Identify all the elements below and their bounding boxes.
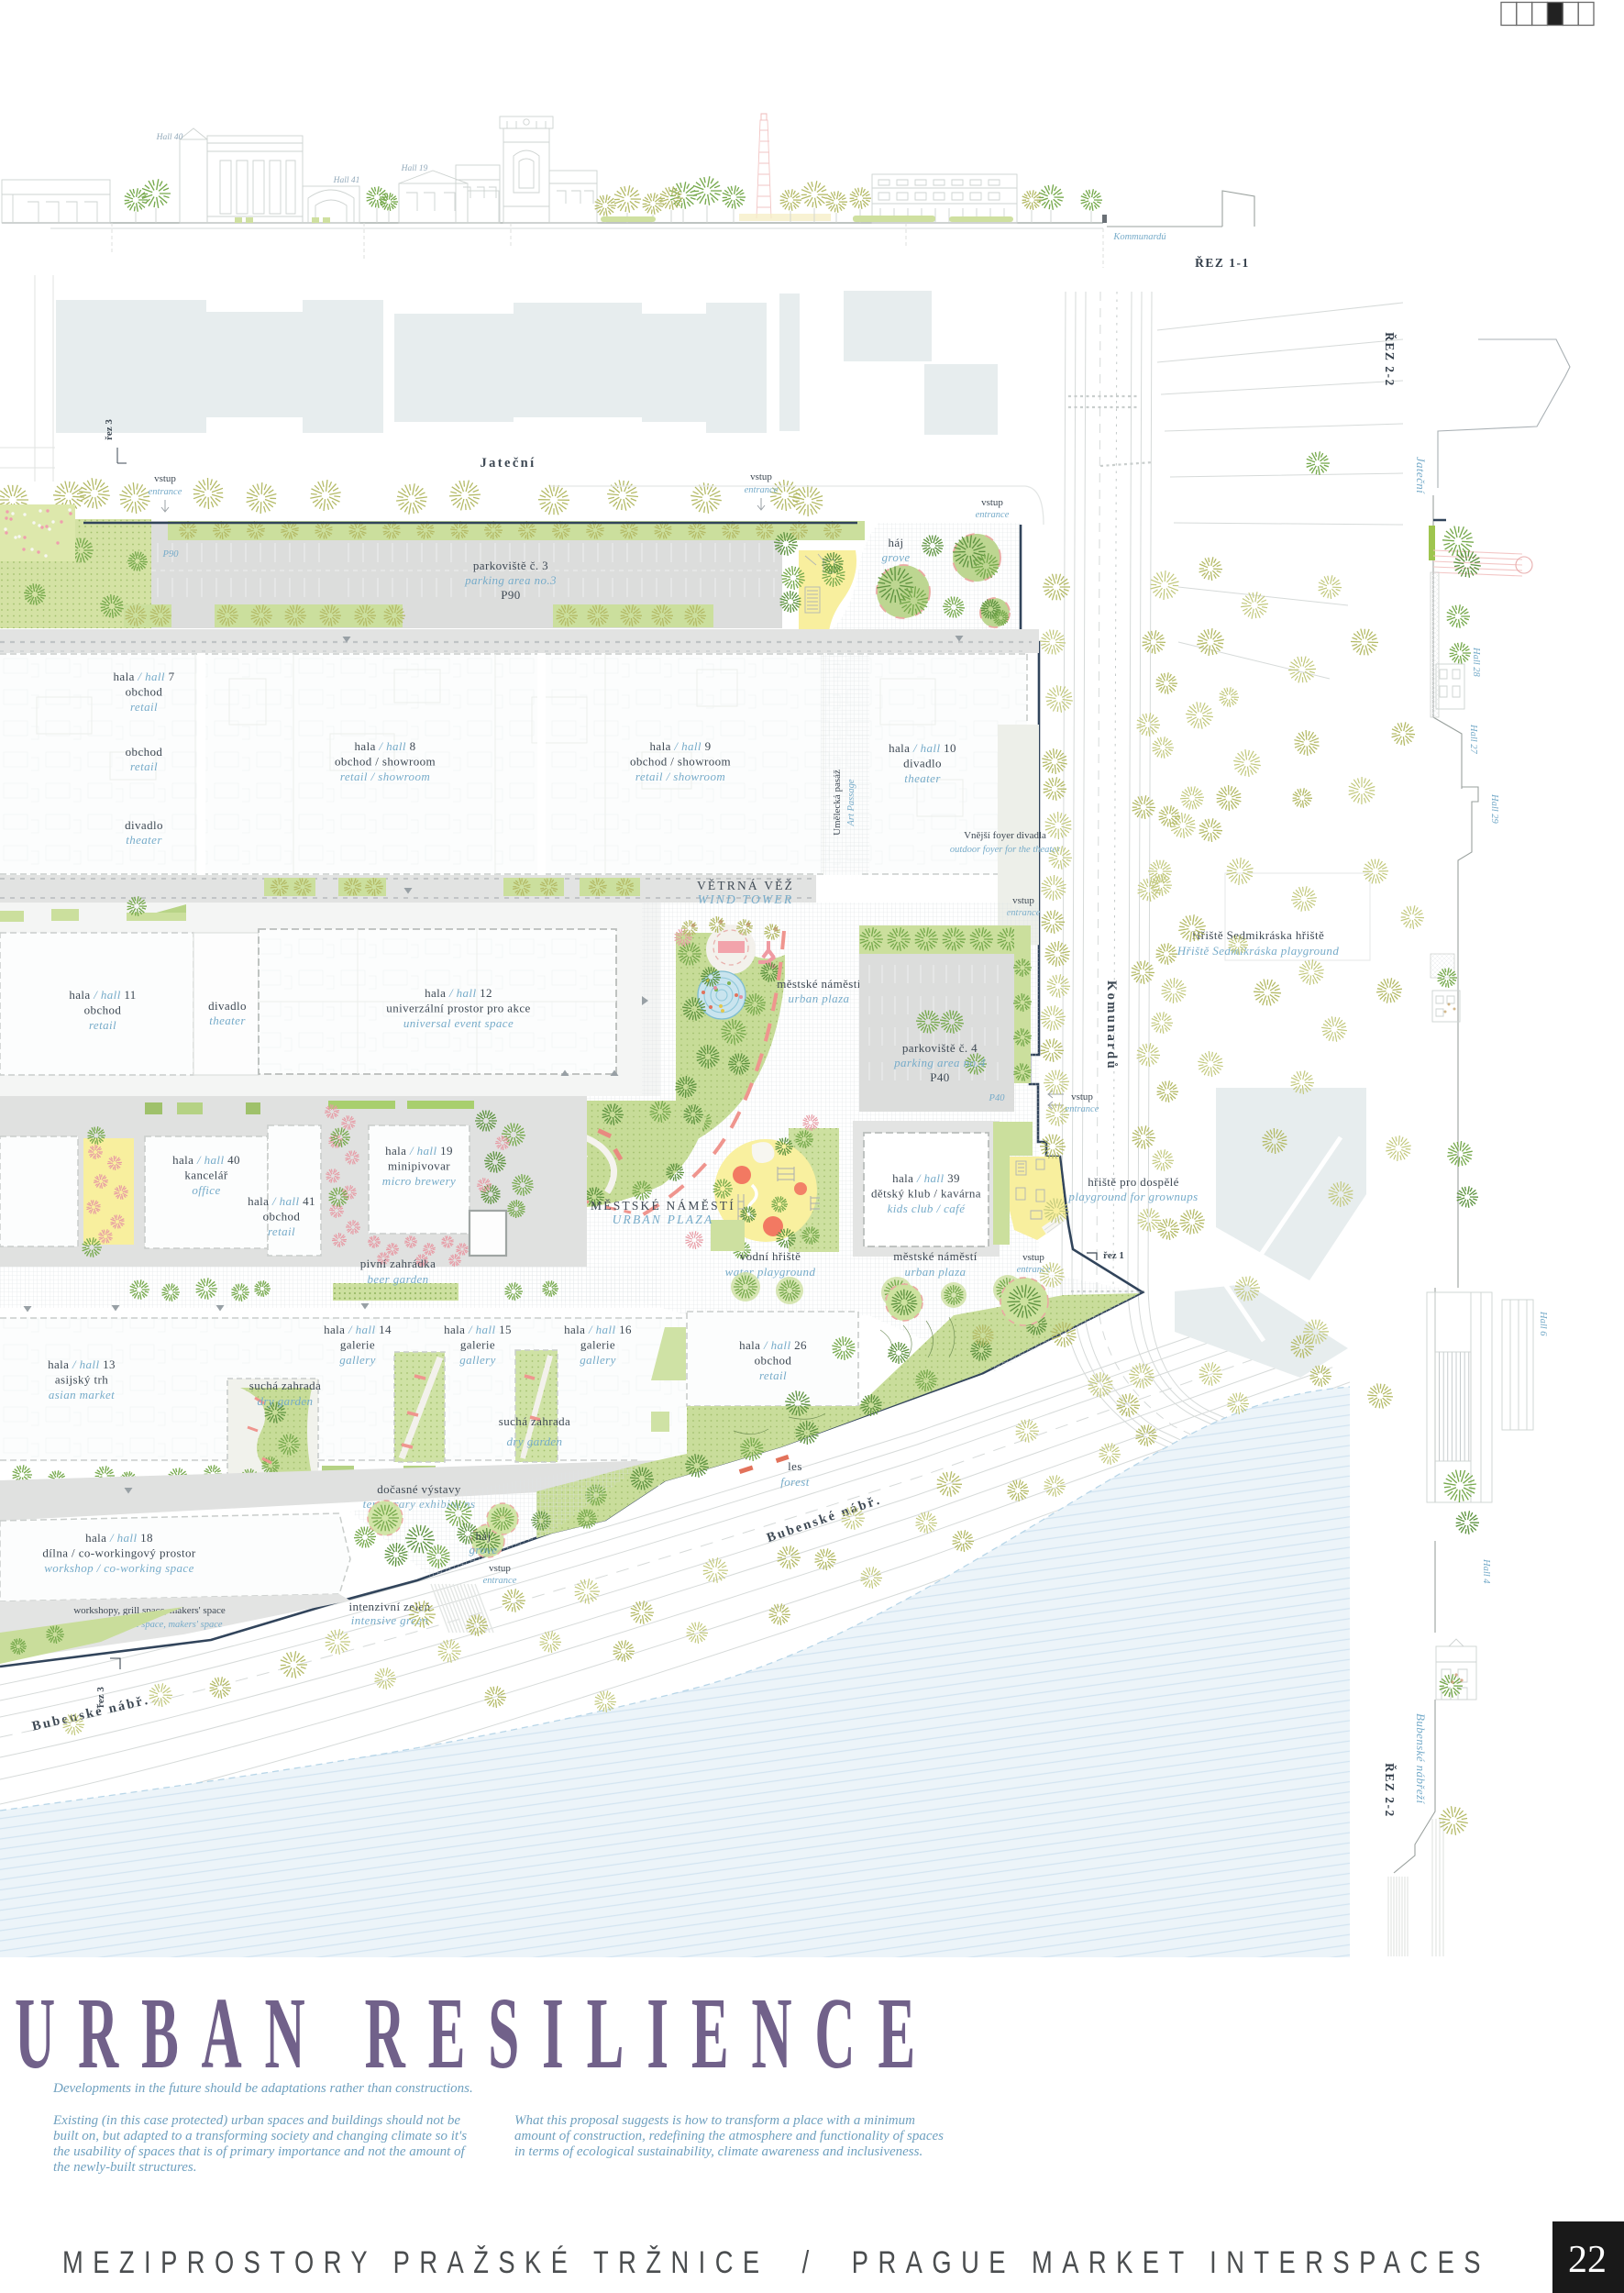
svg-text:office: office [192, 1183, 220, 1197]
svg-text:the newly-built structures.: the newly-built structures. [53, 2160, 197, 2175]
svg-text:P40: P40 [930, 1070, 949, 1084]
svg-text:Jateční: Jateční [1414, 457, 1428, 494]
svg-text:galerie: galerie [460, 1338, 495, 1352]
svg-text:hala / hall 13: hala / hall 13 [48, 1357, 116, 1371]
svg-text:urban plaza: urban plaza [905, 1265, 967, 1279]
svg-text:retail / showroom: retail / showroom [340, 770, 430, 783]
svg-text:hala / hall 7: hala / hall 7 [114, 670, 175, 683]
svg-text:městské náměstí: městské náměstí [893, 1249, 978, 1263]
svg-text:Hall 41: Hall 41 [333, 176, 360, 185]
svg-text:univerzální prostor pro akce: univerzální prostor pro akce [386, 1002, 530, 1015]
svg-text:vstup: vstup [750, 471, 772, 482]
svg-text:vstup: vstup [1071, 1091, 1093, 1102]
svg-text:retail: retail [130, 759, 158, 773]
svg-text:entrance: entrance [1066, 1104, 1099, 1114]
svg-text:vodní hřiště: vodní hřiště [740, 1249, 801, 1263]
svg-text:Developments in the future sho: Developments in the future should be ada… [52, 2081, 473, 2096]
svg-text:vstup: vstup [981, 497, 1003, 508]
svg-text:háj: háj [888, 536, 903, 549]
svg-text:divadlo: divadlo [903, 757, 942, 770]
svg-text:suchá zahrada: suchá zahrada [499, 1414, 570, 1428]
svg-text:parkoviště č. 4: parkoviště č. 4 [902, 1041, 978, 1055]
svg-text:retail: retail [759, 1368, 787, 1382]
svg-text:amount of construction, redefi: amount of construction, redefining the a… [514, 2129, 944, 2143]
svg-text:divadlo: divadlo [208, 999, 247, 1013]
svg-text:Art Passage: Art Passage [846, 779, 856, 826]
svg-text:workshop / co-working space: workshop / co-working space [44, 1561, 194, 1575]
svg-text:Jateční: Jateční [480, 456, 536, 471]
svg-text:URBAN RESILIENCE: URBAN RESILIENCE [15, 1977, 938, 2090]
svg-text:minipivovar: minipivovar [388, 1159, 450, 1173]
svg-text:intensive green: intensive green [351, 1613, 429, 1627]
svg-text:dry garden: dry garden [258, 1394, 314, 1408]
svg-text:MEZIPROSTORY PRAŽSKÉ TRŽNICE: MEZIPROSTORY PRAŽSKÉ TRŽNICE / PRAGUE MA… [62, 2245, 1490, 2280]
svg-text:Hall 19: Hall 19 [401, 164, 428, 173]
svg-text:P90: P90 [162, 549, 180, 559]
svg-text:galerie: galerie [580, 1338, 615, 1352]
svg-text:entrance: entrance [976, 510, 1010, 520]
svg-text:obchod: obchod [126, 745, 163, 759]
svg-text:hala / hall 9: hala / hall 9 [650, 739, 712, 753]
svg-text:Kommunardú: Kommunardú [1112, 232, 1166, 242]
svg-text:Hřiště Sedmikráska hřiště: Hřiště Sedmikráska hřiště [1192, 928, 1324, 942]
svg-text:vstup: vstup [154, 473, 176, 484]
svg-text:Komunardů: Komunardů [1104, 980, 1119, 1070]
svg-text:obchod: obchod [755, 1354, 792, 1368]
svg-text:divadlo: divadlo [125, 818, 163, 832]
svg-text:Hřiště Sedmikráska playground: Hřiště Sedmikráska playground [1177, 944, 1340, 958]
svg-text:hala / hall 15: hala / hall 15 [444, 1323, 512, 1336]
svg-text:P90: P90 [501, 588, 520, 602]
svg-text:in terms of ecological sustain: in terms of ecological sustainability, c… [514, 2144, 922, 2159]
svg-text:intenzivní zeleň: intenzivní zeleň [348, 1600, 430, 1613]
svg-text:theater: theater [904, 771, 941, 785]
svg-text:retail: retail [130, 700, 158, 714]
svg-text:entrance: entrance [483, 1576, 517, 1586]
svg-text:playground for grownups: playground for grownups [1067, 1190, 1198, 1203]
svg-text:URBAN PLAZA: URBAN PLAZA [613, 1213, 714, 1226]
svg-text:ŘEZ 2-2: ŘEZ 2-2 [1383, 1763, 1397, 1818]
svg-text:hala / hall 8: hala / hall 8 [355, 739, 416, 753]
svg-text:22: 22 [1568, 2239, 1607, 2281]
svg-text:VĚTRNÁ VĚŽ: VĚTRNÁ VĚŽ [697, 879, 794, 892]
svg-text:hala / hall 12: hala / hall 12 [425, 986, 492, 1000]
svg-text:hala / hall 16: hala / hall 16 [564, 1323, 632, 1336]
svg-text:obchod: obchod [263, 1210, 301, 1224]
svg-text:městské náměstí: městské náměstí [777, 977, 861, 991]
svg-text:obchod / showroom: obchod / showroom [630, 755, 731, 769]
svg-text:řez 3: řez 3 [104, 419, 115, 440]
svg-text:les: les [788, 1459, 802, 1473]
svg-text:dílna / co-workingový prostor: dílna / co-workingový prostor [42, 1546, 195, 1560]
svg-text:hala / hall 39: hala / hall 39 [892, 1171, 960, 1185]
svg-text:retail: retail [89, 1018, 116, 1032]
svg-text:kids club / café: kids club / café [888, 1202, 967, 1215]
svg-text:Bubenské nábřeží: Bubenské nábřeží [1414, 1713, 1428, 1804]
svg-text:the usability of spaces that i: the usability of spaces that is of prima… [53, 2144, 467, 2159]
svg-text:Hall 40: Hall 40 [156, 133, 183, 142]
svg-text:P40: P40 [989, 1093, 1006, 1103]
svg-text:gallery: gallery [339, 1353, 376, 1367]
svg-text:hala / hall 41: hala / hall 41 [248, 1194, 315, 1208]
svg-text:hala / hall 18: hala / hall 18 [85, 1531, 153, 1545]
svg-text:pivní zahrádka: pivní zahrádka [360, 1257, 436, 1270]
svg-text:theater: theater [126, 833, 162, 847]
svg-text:gallery: gallery [580, 1353, 616, 1367]
svg-text:MĚSTSKÉ NÁMĚSTÍ: MĚSTSKÉ NÁMĚSTÍ [591, 1199, 735, 1213]
svg-text:obchod / showroom: obchod / showroom [335, 755, 436, 769]
svg-text:vstup: vstup [1022, 1252, 1044, 1263]
svg-text:hala / hall 14: hala / hall 14 [324, 1323, 392, 1336]
svg-text:Hall 4: Hall 4 [1481, 1558, 1491, 1584]
svg-text:gallery: gallery [459, 1353, 496, 1367]
svg-text:asijský trh: asijský trh [55, 1373, 108, 1387]
svg-text:Hall 27: Hall 27 [1468, 724, 1478, 755]
svg-text:forest: forest [780, 1475, 810, 1489]
svg-text:galerie: galerie [340, 1338, 375, 1352]
svg-text:hala / hall 10: hala / hall 10 [889, 741, 956, 755]
svg-text:Vnější foyer divadla: Vnější foyer divadla [964, 830, 1046, 841]
svg-text:dry garden: dry garden [507, 1435, 563, 1448]
svg-text:asian market: asian market [49, 1388, 115, 1401]
svg-text:outdoor foyer for the theater: outdoor foyer for the theater [950, 845, 1061, 855]
svg-text:dětský klub / kavárna: dětský klub / kavárna [871, 1187, 981, 1201]
svg-text:kancelář: kancelář [184, 1169, 227, 1182]
svg-text:retail / showroom: retail / showroom [635, 770, 725, 783]
svg-text:What this proposal suggests is: What this proposal suggests is how to tr… [514, 2113, 915, 2128]
svg-text:Hall 28: Hall 28 [1471, 647, 1481, 678]
svg-text:Umělecká pasáž: Umělecká pasáž [832, 770, 843, 836]
svg-text:háj: háj [475, 1529, 491, 1543]
svg-text:built on, but adapted to a tra: built on, but adapted to a transforming … [53, 2129, 467, 2143]
svg-text:parking area no.4: parking area no.4 [893, 1056, 986, 1069]
svg-text:řez 1: řez 1 [1103, 1250, 1124, 1261]
svg-text:vstup: vstup [489, 1563, 511, 1574]
svg-text:parkoviště č. 3: parkoviště č. 3 [473, 559, 548, 572]
svg-text:urban plaza: urban plaza [789, 991, 850, 1005]
svg-text:hala / hall 40: hala / hall 40 [172, 1153, 240, 1167]
svg-text:obchod: obchod [84, 1003, 122, 1017]
svg-text:ŘEZ 2-2: ŘEZ 2-2 [1383, 332, 1397, 387]
svg-text:hřiště pro dospělé: hřiště pro dospělé [1088, 1175, 1179, 1189]
svg-text:hala / hall 19: hala / hall 19 [385, 1144, 453, 1158]
svg-text:hala / hall 11: hala / hall 11 [69, 988, 136, 1002]
svg-text:ŘEZ 1-1: ŘEZ 1-1 [1195, 256, 1250, 270]
svg-text:retail: retail [268, 1224, 295, 1238]
svg-text:hala / hall 26: hala / hall 26 [739, 1338, 807, 1352]
svg-text:Hall 29: Hall 29 [1489, 793, 1499, 825]
svg-text:theater: theater [209, 1014, 246, 1027]
svg-text:entrance: entrance [149, 487, 182, 497]
svg-text:beer garden: beer garden [367, 1272, 428, 1286]
svg-text:suchá zahrada: suchá zahrada [249, 1379, 321, 1392]
svg-text:Existing (in this case protect: Existing (in this case protected) urban … [52, 2113, 460, 2128]
svg-text:Hall 6: Hall 6 [1538, 1311, 1548, 1336]
svg-text:universal event space: universal event space [403, 1016, 514, 1030]
svg-text:řez 3: řez 3 [95, 1687, 106, 1708]
svg-text:grove: grove [881, 550, 910, 564]
svg-text:obchod: obchod [126, 685, 163, 699]
svg-text:micro brewery: micro brewery [382, 1174, 456, 1188]
svg-text:parking area no.3: parking area no.3 [464, 573, 557, 587]
svg-text:grove: grove [469, 1543, 497, 1556]
